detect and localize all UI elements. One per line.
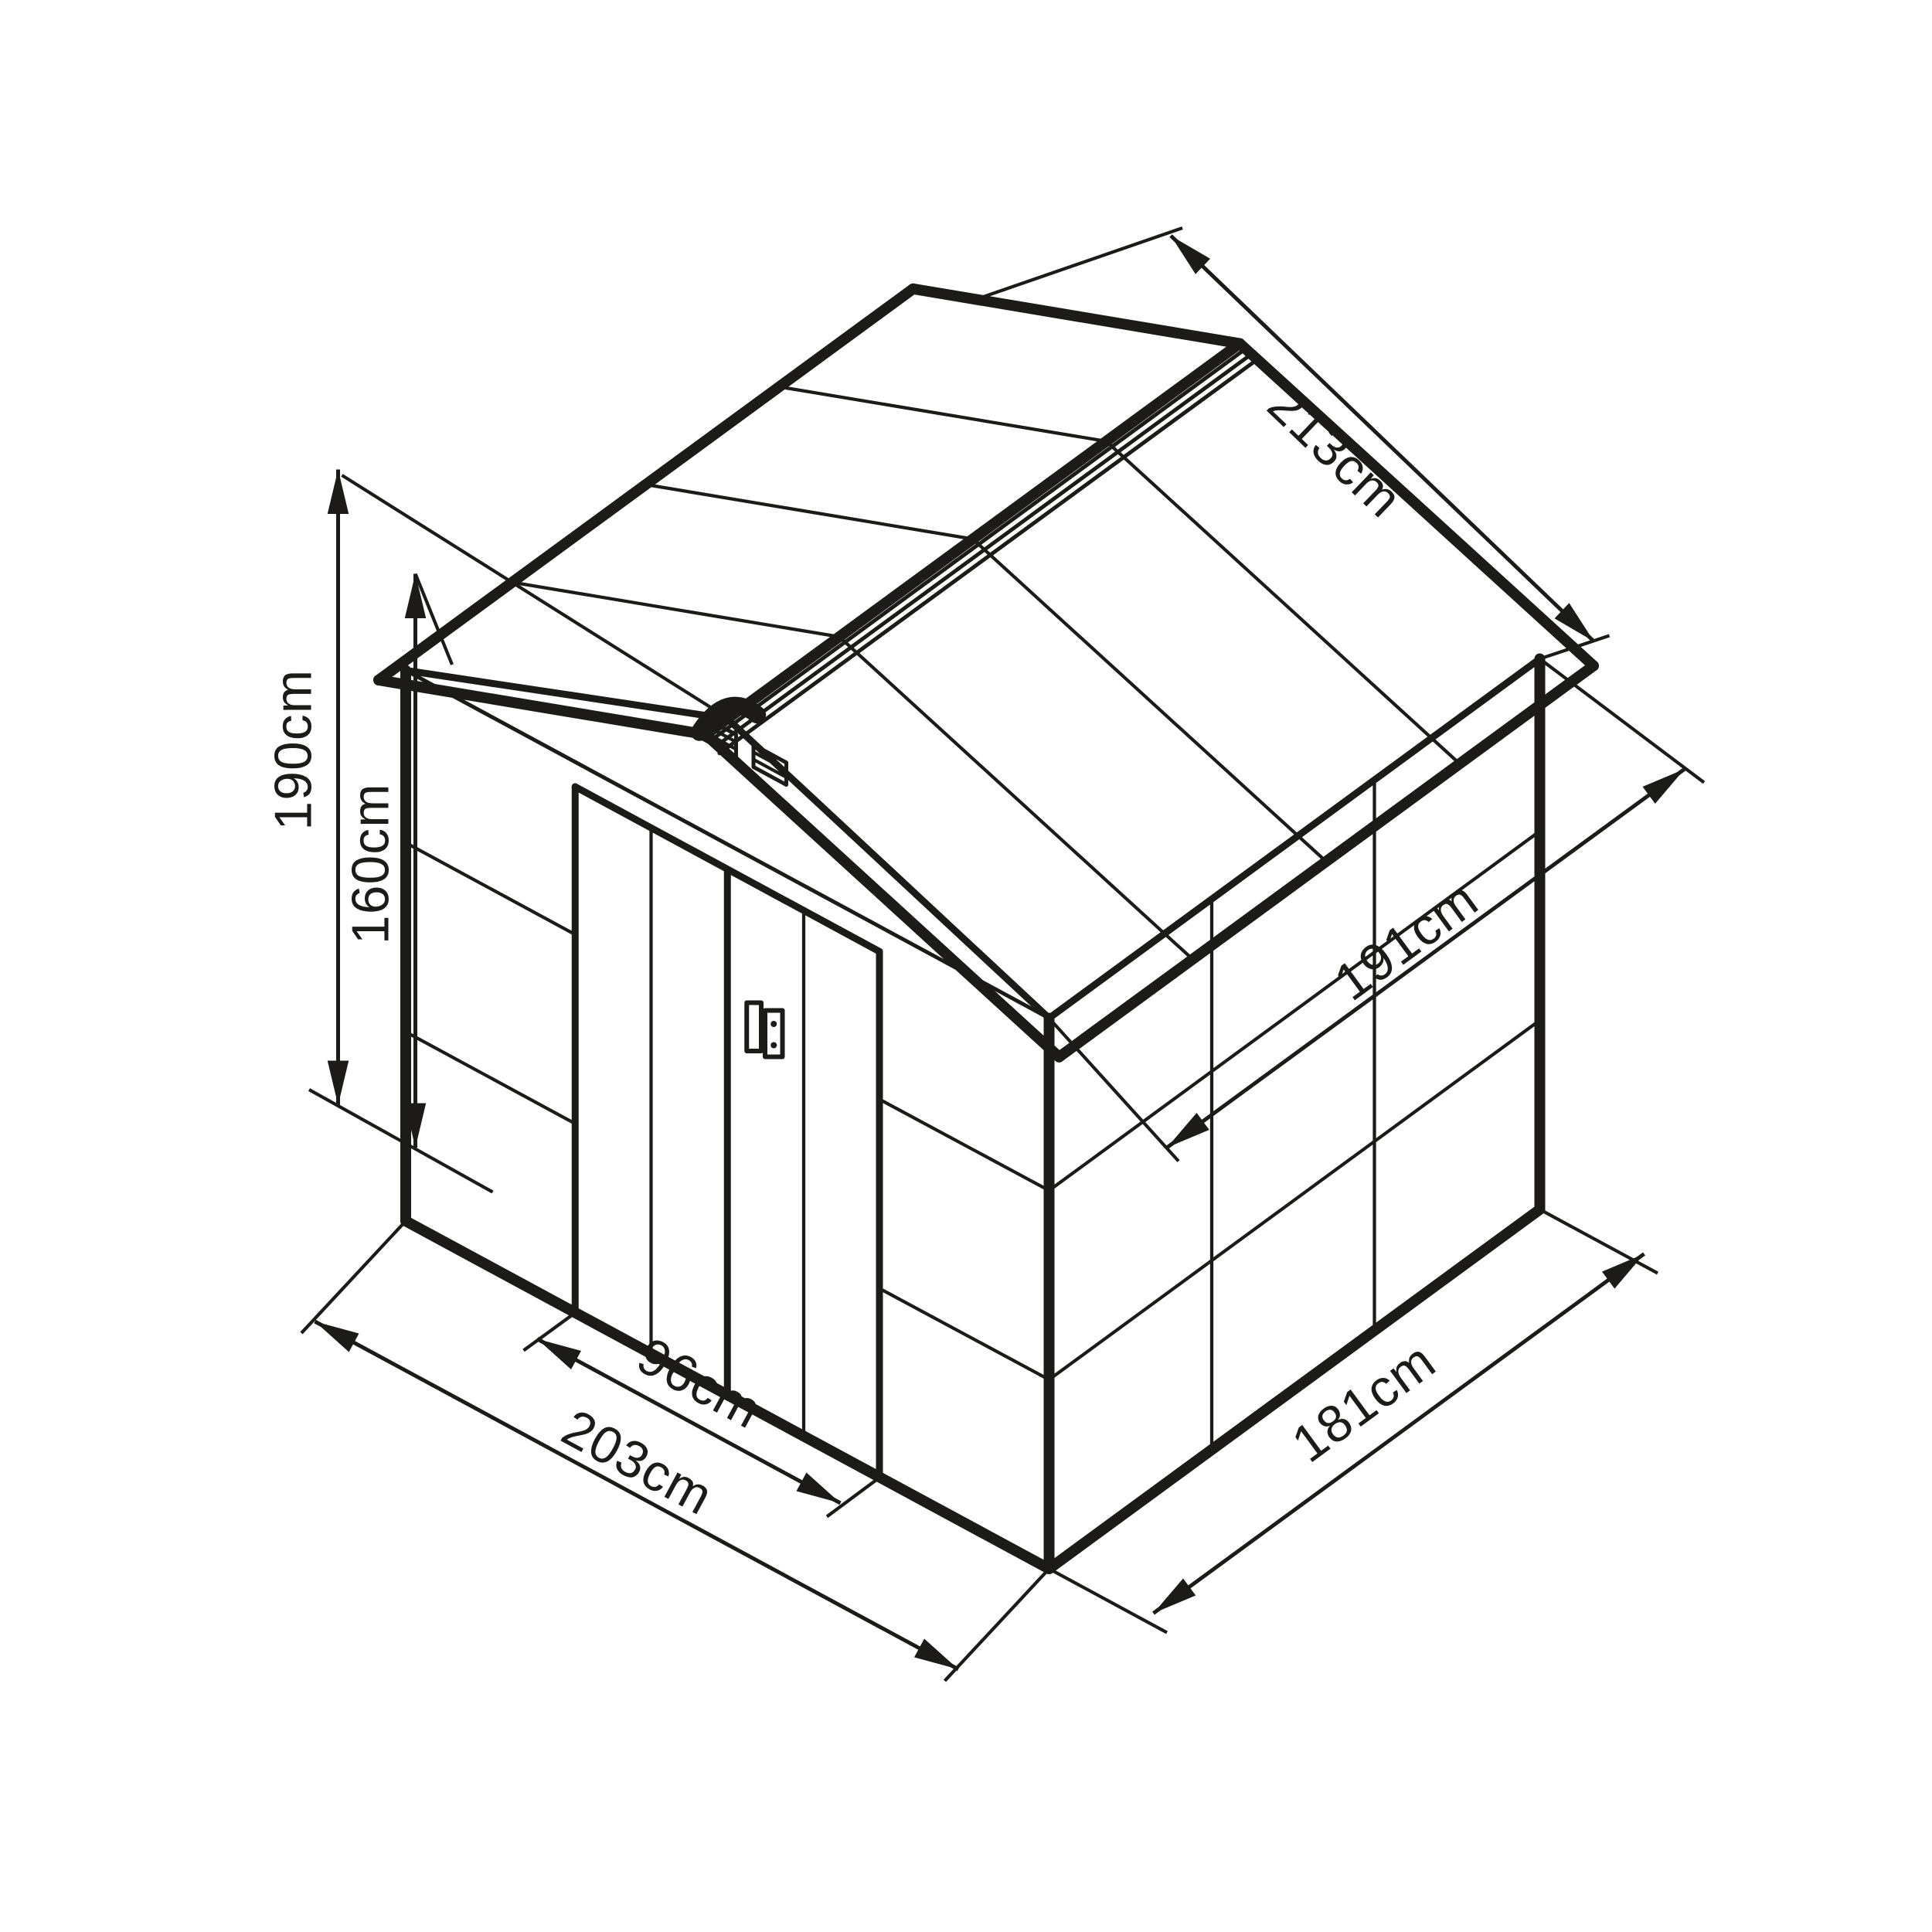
- arrowhead-downleft-icon: [1167, 1113, 1209, 1148]
- extension-line: [1540, 659, 1705, 783]
- arrowhead-upleft-icon: [315, 1321, 359, 1352]
- shed-drawing-svg: 190cm 160cm 213cm 191cm: [0, 0, 1932, 1932]
- dim-label-190cm: 190cm: [265, 669, 323, 831]
- arrowhead-downright-icon: [797, 1473, 841, 1504]
- dimension-base-depth: 181cm: [1049, 1209, 1658, 1633]
- dim-label-181cm: 181cm: [1282, 1332, 1447, 1474]
- extension-line: [301, 1221, 406, 1333]
- roof-ridge-cap: [706, 344, 1253, 753]
- arrowhead-upright-icon: [1643, 769, 1685, 804]
- door-handle: [747, 1003, 782, 1057]
- dim-label-213cm: 213cm: [1257, 376, 1413, 529]
- dim-label-160cm: 160cm: [342, 783, 400, 944]
- extension-line: [1049, 1019, 1179, 1162]
- arrowhead-upright-icon: [1602, 1254, 1645, 1289]
- arrowhead-down-icon: [328, 1061, 349, 1106]
- dim-label-203cm: 203cm: [553, 1399, 722, 1526]
- dimension-total-width: 203cm: [301, 1221, 1049, 1681]
- extension-line: [827, 1478, 879, 1517]
- extension-line: [1049, 1569, 1168, 1633]
- dim-label-191cm: 191cm: [1325, 870, 1489, 1012]
- extension-line: [945, 1569, 1049, 1681]
- extension-line: [1540, 1209, 1658, 1274]
- arrowhead-downleft-icon: [1154, 1579, 1196, 1614]
- shed-dimension-diagram: 190cm 160cm 213cm 191cm: [0, 0, 1932, 1932]
- dim-label-96cm: 96cm: [628, 1327, 770, 1440]
- arrowhead-downright-icon: [914, 1639, 958, 1670]
- extension-line: [976, 228, 1183, 300]
- dimension-inner-depth: 191cm: [1049, 659, 1705, 1162]
- roof-left-panel: [379, 289, 1240, 680]
- arrowhead-upleft-icon: [537, 1339, 581, 1370]
